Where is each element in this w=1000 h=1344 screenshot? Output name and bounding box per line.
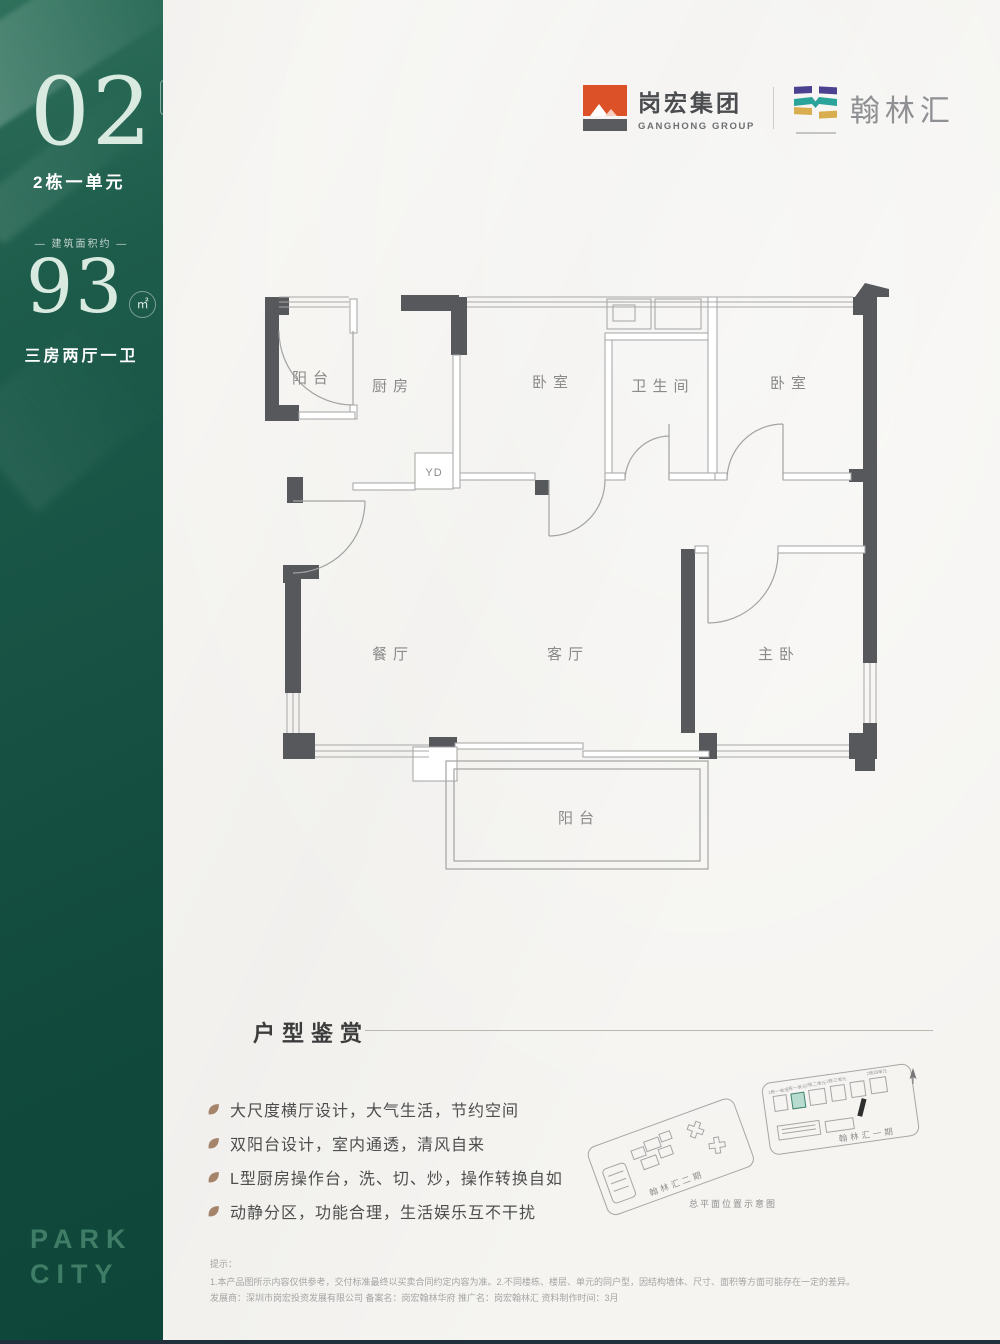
feature-item: 动静分区，功能合理，生活娱乐互不干扰 [207, 1194, 563, 1228]
feature-list: 大尺度横厅设计，大气生活，节约空间 双阳台设计，室内通透，清风自来 L型厨房操作… [207, 1092, 563, 1228]
area-value: 93 [26, 250, 124, 324]
highlighted-building [791, 1092, 806, 1109]
hanlinhui-logo-icon [792, 86, 840, 131]
feature-item: 双阳台设计，室内通透，清风自来 [207, 1126, 563, 1160]
brand-line1: PARK [30, 1222, 133, 1257]
room-label-balcony-bottom: 阳台 [558, 810, 600, 827]
room-label-bedroom-right: 卧室 [770, 375, 812, 392]
section-title-line [365, 1030, 933, 1031]
layout-label: 三房两厅一卫 [0, 342, 163, 366]
area-row: 93 ㎡ [26, 250, 156, 324]
header-logos: 岗宏集团 GANGHONG GROUP 翰林汇 [583, 84, 955, 132]
feature-item: L型厨房操作台，洗、切、炒，操作转换自如 [207, 1160, 563, 1194]
page-bottom-edge [0, 1340, 1000, 1344]
plan-partitions [299, 297, 865, 781]
room-label-kitchen: 厨房 [372, 378, 414, 395]
unit-number-row: 02 户型 [30, 66, 163, 160]
site-plan-building-label: 2栋一单元 [785, 1083, 807, 1093]
site-plan: 翰林汇二期 1栋一单元 2栋一单元 2栋二单元 2栋三单元 [575, 1046, 930, 1226]
plan-walls [265, 283, 889, 771]
hanlinhui-logo: 翰林汇 [792, 86, 955, 131]
sidebar: 02 户型 2栋一单元 — 建筑面积约 — 93 ㎡ 三房两厅一卫 PARK C… [0, 0, 163, 1344]
area-unit-badge: ㎡ [129, 291, 156, 318]
site-plan-phase1: 1栋一单元 2栋一单元 2栋二单元 2栋三单元 2栋四单元 翰林汇一期 [761, 1063, 920, 1155]
plan-room-labels: 阳台 厨房 卧室 卫生间 卧室 餐厅 客厅 主卧 阳台 YD [292, 370, 812, 827]
disclaimer: 提示： 1.本产品图所示内容仅供参考，交付标准最终以买卖合同约定内容为准。2.不… [210, 1256, 930, 1306]
ganghong-logo: 岗宏集团 GANGHONG GROUP [583, 84, 755, 132]
disclaimer-tip: 提示： [210, 1256, 930, 1272]
room-label-balcony-top: 阳台 [292, 370, 334, 387]
floor-plan: 阳台 厨房 卧室 卫生间 卧室 餐厅 客厅 主卧 阳台 YD [253, 283, 893, 880]
ganghong-name: 岗宏集团 [638, 84, 755, 118]
disclaimer-line1: 1.本产品图所示内容仅供参考，交付标准最终以买卖合同约定内容为准。2.不同楼栋、… [210, 1274, 930, 1290]
brand-parkcity: PARK CITY [30, 1222, 133, 1292]
room-label-bedroom-mid: 卧室 [532, 374, 574, 391]
site-plan-building-label: 2栋三单元 [826, 1075, 848, 1085]
logo-divider [773, 87, 774, 129]
room-label-dining: 餐厅 [372, 646, 414, 663]
leaf-icon [207, 1137, 220, 1150]
leaf-icon [207, 1205, 220, 1218]
hanlinhui-name: 翰林汇 [850, 86, 955, 130]
site-plan-caption: 总平面位置示意图 [689, 1198, 777, 1209]
leaf-icon [207, 1171, 220, 1184]
plan-windows [279, 297, 876, 757]
page: 02 户型 2栋一单元 — 建筑面积约 — 93 ㎡ 三房两厅一卫 PARK C… [0, 0, 1000, 1344]
ganghong-sub: GANGHONG GROUP [638, 121, 755, 132]
unit-label: 2栋一单元 [33, 168, 125, 193]
site-plan-phase2-label: 翰林汇二期 [648, 1169, 705, 1198]
section-title: 户型鉴赏 [253, 1016, 369, 1048]
feature-text: 双阳台设计，室内通透，清风自来 [230, 1131, 485, 1155]
room-label-master: 主卧 [758, 646, 800, 663]
feature-text: 动静分区，功能合理，生活娱乐互不干扰 [230, 1199, 536, 1223]
disclaimer-line2: 发展商：深圳市岗宏投资发展有限公司 备案名：岗宏翰林华府 推广名：岗宏翰林汇 资… [210, 1290, 930, 1306]
feature-text: 大尺度横厅设计，大气生活，节约空间 [230, 1097, 519, 1121]
leaf-icon [207, 1103, 220, 1116]
shaft-label: YD [425, 467, 442, 479]
room-label-bathroom: 卫生间 [631, 378, 694, 395]
unit-number: 02 [30, 66, 154, 160]
site-plan-building-label: 2栋二单元 [805, 1079, 827, 1089]
ganghong-logo-icon [583, 85, 627, 131]
feature-text: L型厨房操作台，洗、切、炒，操作转换自如 [230, 1165, 563, 1189]
unit-type-badge: 户型 [160, 80, 163, 115]
room-label-living: 客厅 [547, 646, 589, 663]
site-plan-phase1-label: 翰林汇一期 [838, 1126, 896, 1144]
plan-shafts [607, 299, 701, 329]
brand-line2: CITY [30, 1257, 133, 1292]
feature-item: 大尺度横厅设计，大气生活，节约空间 [207, 1092, 563, 1126]
